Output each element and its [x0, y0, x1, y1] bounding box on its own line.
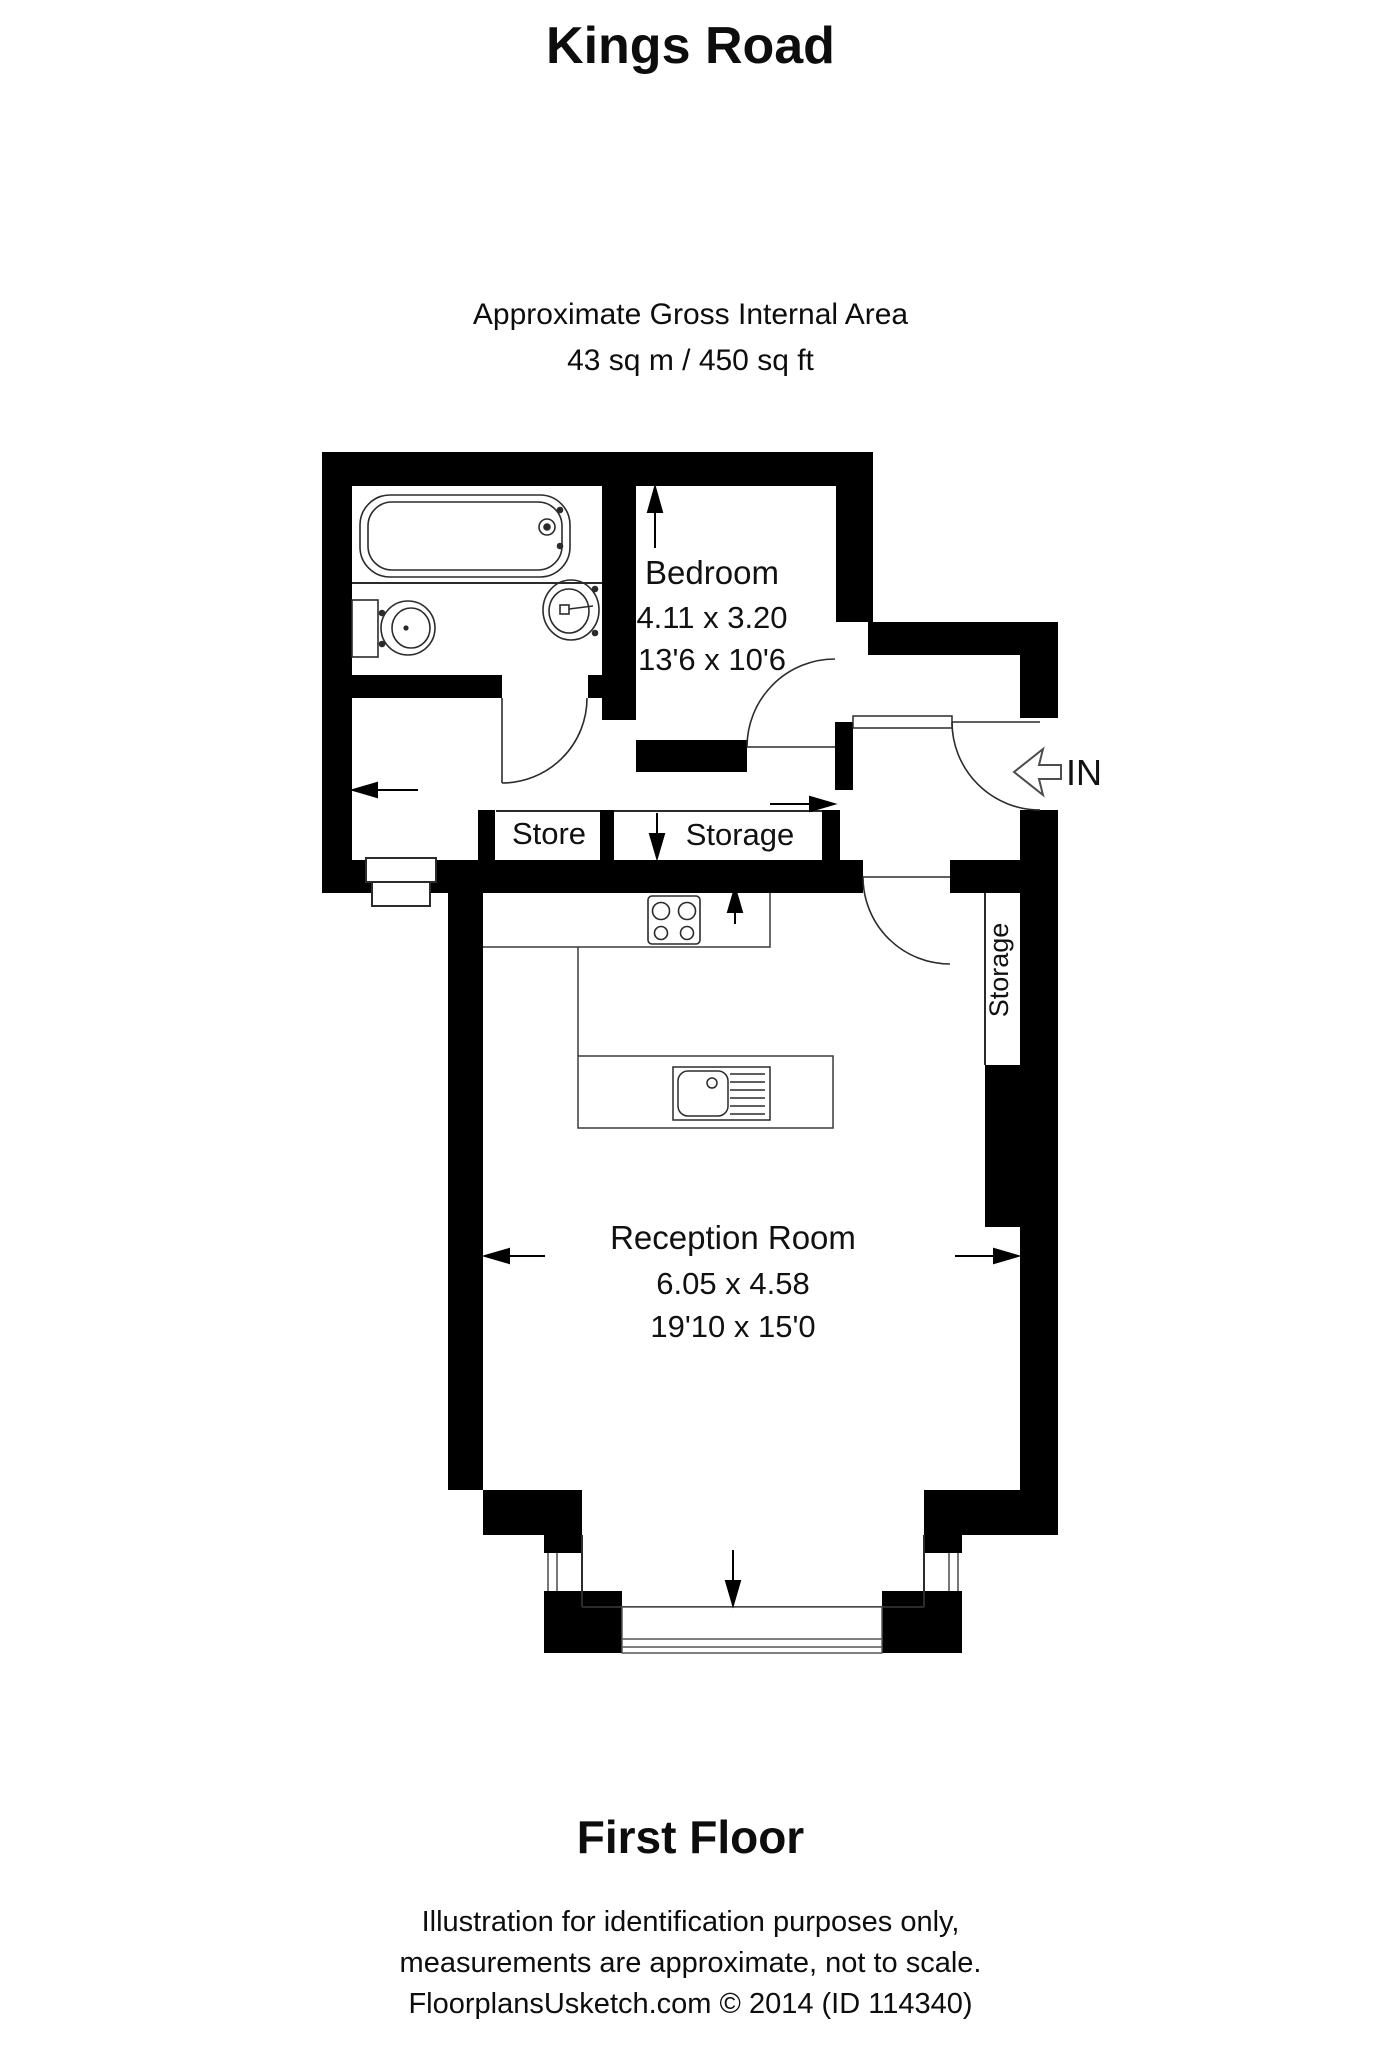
entry-side-wall — [853, 716, 952, 728]
reception-left-arrow — [485, 1249, 545, 1263]
reception-name: Reception Room — [610, 1219, 856, 1256]
bedroom-up-arrow — [648, 487, 662, 548]
hall-window — [366, 858, 436, 906]
entrance-arrow-icon — [1014, 749, 1061, 795]
kitchen-up-arrow — [728, 888, 742, 924]
bathroom-sink-icon — [543, 580, 599, 640]
bathroom-door — [502, 698, 587, 783]
storage-down-arrow — [650, 813, 664, 858]
disclaimer-line1: Illustration for identification purposes… — [0, 1902, 1381, 1943]
reception-right-arrow — [955, 1249, 1018, 1263]
entrance: IN — [1014, 749, 1102, 795]
disclaimer-line2: measurements are approximate, not to sca… — [0, 1943, 1381, 1984]
bedroom-right-arrow — [770, 797, 834, 811]
disclaimer-line3: FloorplansUsketch.com © 2014 (ID 114340) — [0, 1984, 1381, 2025]
bedroom-imperial: 13'6 x 10'6 — [638, 642, 786, 677]
reception-door — [863, 877, 950, 964]
storage-label: Storage — [686, 817, 795, 852]
toilet-icon — [352, 600, 435, 657]
floorplan-page: Kings Road Approximate Gross Internal Ar… — [0, 0, 1381, 2048]
hall-left-arrow — [353, 783, 418, 797]
bay-left-window — [548, 1553, 557, 1591]
bay-right-window — [949, 1553, 958, 1591]
storage-vertical-label: Storage — [984, 923, 1014, 1018]
store-label: Store — [512, 816, 586, 851]
floor-label: First Floor — [0, 1810, 1381, 1864]
kitchen-counter — [483, 893, 833, 1128]
bedroom-name: Bedroom — [645, 554, 779, 591]
hob-icon — [648, 896, 700, 944]
bay-bottom-window — [622, 1607, 882, 1653]
disclaimer: Illustration for identification purposes… — [0, 1902, 1381, 2025]
bath-icon — [360, 495, 570, 577]
partition-lines — [352, 583, 985, 1607]
bedroom-metric: 4.11 x 3.20 — [636, 600, 787, 635]
reception-metric: 6.05 x 4.58 — [656, 1266, 809, 1301]
reception-imperial: 19'10 x 15'0 — [650, 1309, 815, 1344]
bay-down-arrow — [726, 1550, 740, 1605]
entrance-label: IN — [1066, 752, 1102, 793]
room-labels: Bedroom 4.11 x 3.20 13'6 x 10'6 Receptio… — [512, 554, 1014, 1344]
kitchen-sink-icon — [673, 1067, 770, 1120]
floorplan-svg: IN Bedroom 4.11 x 3.20 13'6 x 10'6 Recep… — [0, 0, 1381, 2048]
